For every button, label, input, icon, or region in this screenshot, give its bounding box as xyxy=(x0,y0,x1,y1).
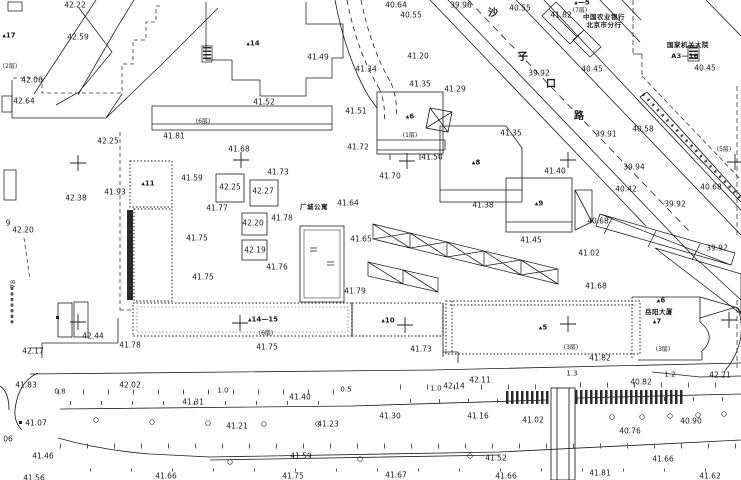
elevation-label: 41.73 xyxy=(267,168,288,176)
elevation-label: 42.27 xyxy=(252,187,273,195)
building-number: ▴10 xyxy=(381,318,394,325)
building-name: 国家机关大院 xyxy=(667,42,709,49)
elevation-label: 41.78 xyxy=(119,341,140,349)
elevation-label: 41.23 xyxy=(317,420,338,428)
elevation-label: 41.38 xyxy=(472,201,493,209)
building-number: ▴17 xyxy=(2,33,15,40)
elevation-label: 42.20 xyxy=(12,226,33,234)
elevation-label: 41.65 xyxy=(350,235,371,243)
elevation-label: 39.91 xyxy=(595,130,616,138)
elevation-label: 41.52 xyxy=(485,454,506,462)
elevation-label: 41.68 xyxy=(585,282,606,290)
elevation-label: 40.45 xyxy=(581,65,602,73)
elevation-label: 42.14 xyxy=(443,382,464,390)
building-number: ▴14 xyxy=(246,41,259,48)
elevation-label: 42.22 xyxy=(64,1,85,9)
building-name: 北京市分行 xyxy=(587,22,622,29)
building-number: ▴7 xyxy=(653,319,661,326)
elevation-label: 41.81 xyxy=(589,469,610,477)
elevation-label: 9 xyxy=(6,219,11,227)
building-number: ▴9 xyxy=(535,201,543,208)
elevation-label: 41.45 xyxy=(520,236,541,244)
elevation-label: 41.16 xyxy=(467,412,488,420)
elevation-label: 41.29 xyxy=(444,85,465,93)
elevation-label: 41.81 xyxy=(163,132,184,140)
building-number: ▴—5 xyxy=(574,0,589,7)
elevation-label: 41.35 xyxy=(409,80,430,88)
elevation-label: 42.17 xyxy=(22,347,43,355)
elevation-label: 41.82 xyxy=(589,354,610,362)
elevation-label: 42.20 xyxy=(242,219,263,227)
elevation-label: 41.34 xyxy=(355,65,376,73)
building-name: 岳阳大厦 xyxy=(645,309,673,316)
street-name-char: 沙 xyxy=(488,9,498,19)
elevation-label: 41.79 xyxy=(344,287,365,295)
building-name: A3—16 xyxy=(671,53,699,60)
distance-label: 1.2 xyxy=(664,372,675,379)
elevation-label: 42.06 xyxy=(21,76,42,84)
elevation-label: 40.68 xyxy=(700,183,721,191)
elevation-label: 41.83 xyxy=(15,381,36,389)
elevation-label: 41.70 xyxy=(379,172,400,180)
elevation-label: 42.59 xyxy=(67,33,88,41)
elevation-label: 41.93 xyxy=(104,188,125,196)
elevation-label: 42.21 xyxy=(709,371,730,379)
building-number: ▴14—15 xyxy=(248,317,278,324)
elevation-label: 41.62 xyxy=(699,472,720,480)
elevation-label: 41.68 xyxy=(228,145,249,153)
elevation-label: 41.56 xyxy=(23,474,44,480)
elevation-label: 41.75 xyxy=(256,343,277,351)
elevation-label: 41.31 xyxy=(182,398,203,406)
elevation-label: 40.55 xyxy=(509,4,530,12)
elevation-label: 41.67 xyxy=(385,471,406,479)
elevation-label: 42.25 xyxy=(219,183,240,191)
elevation-label: 41.50 xyxy=(421,153,442,161)
floor-count-label: (1层) xyxy=(403,133,418,139)
distance-label: 1.0 xyxy=(217,388,228,395)
elevation-label: 41.07 xyxy=(25,419,46,427)
elevation-label: 41.51 xyxy=(345,107,366,115)
elevation-label: 41.82 xyxy=(550,11,571,19)
building-number: ▴6 xyxy=(406,114,414,121)
elevation-label: 41.52 xyxy=(253,98,274,106)
elevation-label: 41.02 xyxy=(578,249,599,257)
distance-label: 0.5 xyxy=(340,387,351,394)
floor-count-label: (2层) xyxy=(3,64,18,70)
elevation-label: 41.66 xyxy=(652,455,673,463)
elevation-label: 42.38 xyxy=(65,194,86,202)
elevation-label: 41.40 xyxy=(544,167,565,175)
distance-label: 1.3 xyxy=(566,371,577,378)
elevation-label: 41.64 xyxy=(337,199,358,207)
street-name-char: 子 xyxy=(518,53,528,63)
elevation-label: 41.35 xyxy=(500,129,521,137)
elevation-label: 42.02 xyxy=(119,381,140,389)
elevation-label: 40.68 xyxy=(587,217,608,225)
building-number: ▴5 xyxy=(539,325,547,332)
floor-count-label: (3层) xyxy=(656,347,671,353)
elevation-label: 40.58 xyxy=(632,125,653,133)
floor-count-label: (6层) xyxy=(196,119,211,125)
building-name: 厂城公寓 xyxy=(300,204,328,211)
elevation-label: 39.94 xyxy=(623,163,644,171)
elevation-label: 41.02 xyxy=(522,416,543,424)
building-name: 中国农业银行 xyxy=(583,14,625,21)
elevation-label: 41.59 xyxy=(181,174,202,182)
elevation-label: 40.64 xyxy=(385,1,406,9)
elevation-label: 40.45 xyxy=(694,64,715,72)
elevation-label: 06 xyxy=(3,435,13,443)
elevation-label: 41.72 xyxy=(347,143,368,151)
elevation-label: 41.21 xyxy=(226,422,247,430)
elevation-label: 42.44 xyxy=(82,332,103,340)
distance-label: 1.0 xyxy=(430,386,441,393)
street-name-char: 路 xyxy=(574,112,584,122)
elevation-label: 41.75 xyxy=(282,472,303,480)
rotated-label: 78 xyxy=(10,280,17,288)
elevation-label: 41.66 xyxy=(495,472,516,480)
elevation-label: 42.11 xyxy=(469,376,490,384)
site-plan-map: 42.2242.5942.0642.6442.3842.20942.2541.9… xyxy=(0,0,741,480)
elevation-label: 41.76 xyxy=(266,263,287,271)
elevation-label: 41.66 xyxy=(155,472,176,480)
elevation-label: 41.75 xyxy=(192,273,213,281)
elevation-label: 42.64 xyxy=(13,97,34,105)
elevation-label: 40.90 xyxy=(680,417,701,425)
elevation-label: 41.75 xyxy=(186,234,207,242)
elevation-label: 40.42 xyxy=(615,185,636,193)
floor-count-label: (3层) xyxy=(564,345,579,351)
elevation-label: 41.30 xyxy=(379,412,400,420)
elevation-label: 41.46 xyxy=(32,452,53,460)
elevation-label: 41.77 xyxy=(206,204,227,212)
map-labels-layer: 42.2242.5942.0642.6442.3842.20942.2541.9… xyxy=(0,0,741,480)
elevation-label: 39.96 xyxy=(450,1,471,9)
floor-count-label: (5层) xyxy=(717,147,732,153)
elevation-label: 41.20 xyxy=(407,52,428,60)
building-number: ▴11 xyxy=(141,181,154,188)
elevation-label: 42.25 xyxy=(97,137,118,145)
distance-label: 0.8 xyxy=(54,389,65,396)
elevation-label: 40.82 xyxy=(630,378,651,386)
street-name-char: 口 xyxy=(546,80,556,90)
building-number: ▴8 xyxy=(472,160,480,167)
elevation-label: 39.92 xyxy=(664,200,685,208)
elevation-label: 41.59 xyxy=(290,452,311,460)
elevation-label: 41.78 xyxy=(271,214,292,222)
elevation-label: 39.92 xyxy=(528,69,549,77)
elevation-label: 40.55 xyxy=(400,11,421,19)
floor-count-label: (6层) xyxy=(259,331,274,337)
elevation-label: 40.76 xyxy=(619,427,640,435)
elevation-label: 41.73 xyxy=(410,345,431,353)
elevation-label: 42.19 xyxy=(244,246,265,254)
elevation-label: 41.40 xyxy=(289,393,310,401)
building-number: ▴6 xyxy=(657,298,665,305)
elevation-label: 41.49 xyxy=(307,53,328,61)
elevation-label: 39.92 xyxy=(706,244,727,252)
